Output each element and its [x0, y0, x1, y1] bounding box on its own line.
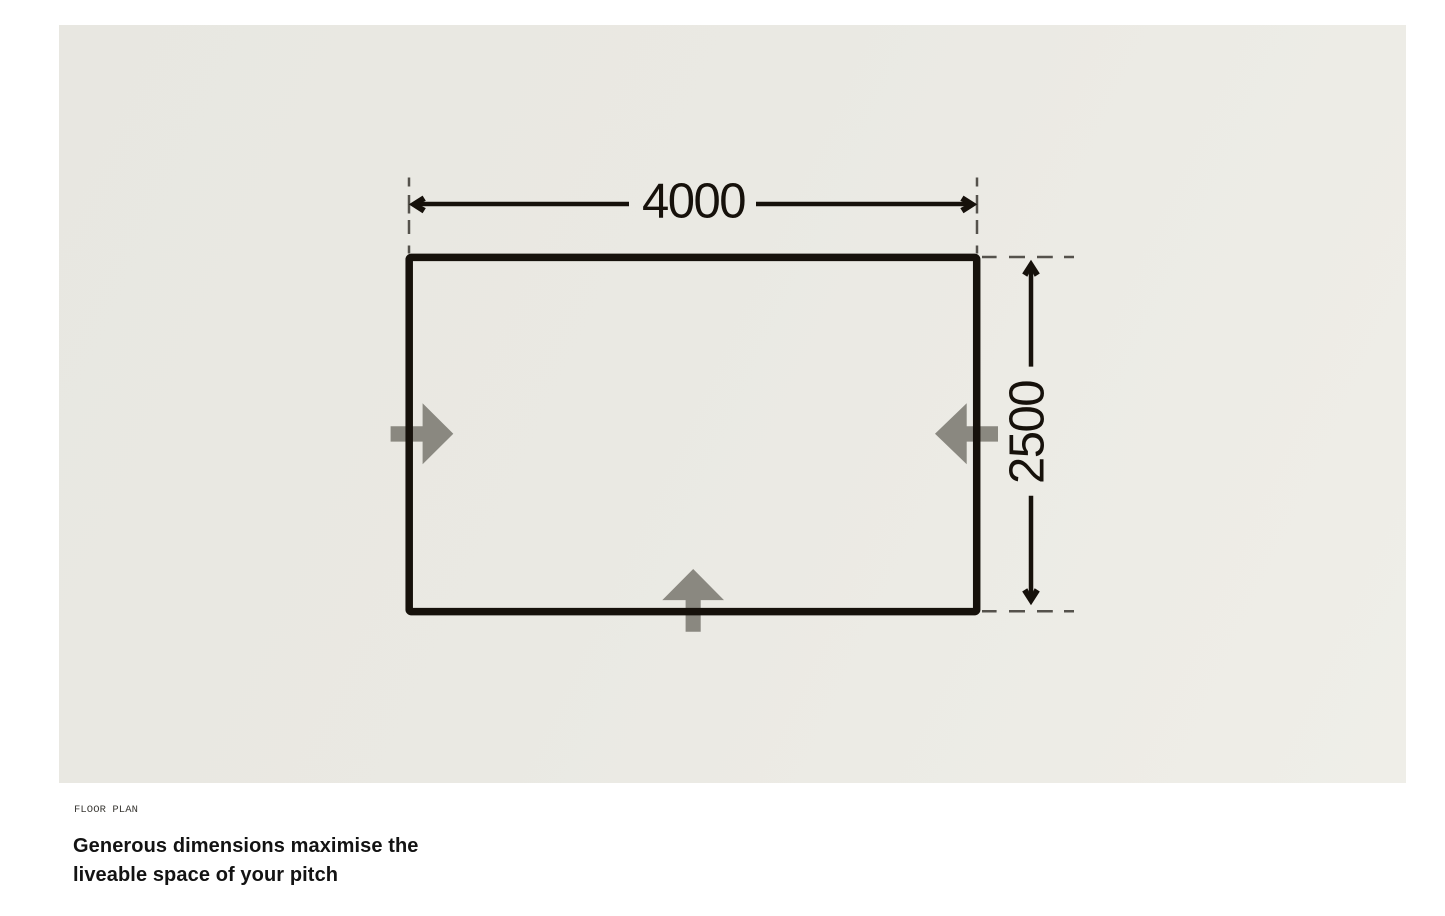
- svg-text:4000: 4000: [642, 175, 745, 229]
- svg-text:2500: 2500: [1001, 381, 1055, 484]
